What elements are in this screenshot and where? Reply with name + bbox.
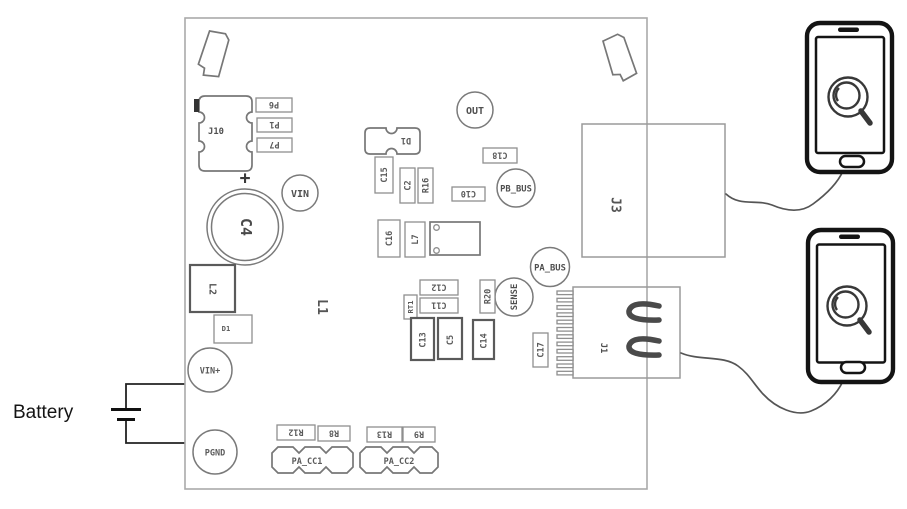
r20-label: R20 xyxy=(484,289,494,304)
j1-pins xyxy=(557,291,573,375)
d1-top-label: D1 xyxy=(401,135,411,145)
battery-wire-positive xyxy=(126,384,185,409)
testpoint-vin-plus: VIN+ xyxy=(188,348,232,392)
battery-label: Battery xyxy=(13,402,74,423)
j10-label: J10 xyxy=(208,127,224,137)
c4-label: C4 xyxy=(237,218,255,236)
testpoint-pb-bus: PB_BUS xyxy=(497,169,535,207)
j1-label: J1 xyxy=(598,343,608,354)
board-mark-top-right xyxy=(601,32,637,83)
l7-label: L7 xyxy=(411,234,421,244)
connector-j1: J1 xyxy=(557,287,680,378)
c16-label: C16 xyxy=(385,231,395,246)
connector-pa-cc2: PA_CC2 xyxy=(360,447,438,473)
battery-wire-negative xyxy=(126,420,185,443)
l2-label: L2 xyxy=(207,283,218,295)
phone-2-speaker xyxy=(839,235,860,240)
pa-bus-label: PA_BUS xyxy=(534,264,566,274)
phone-2-home-button xyxy=(841,362,865,373)
d1-label: D1 xyxy=(222,324,231,333)
usb-cable-to-phone-1 xyxy=(726,171,843,210)
c15-label: C15 xyxy=(380,167,390,182)
j1-shield-clip-2 xyxy=(629,339,659,355)
phone-1 xyxy=(807,23,892,172)
c11-label: C11 xyxy=(431,300,446,310)
r9-label: R9 xyxy=(414,429,424,439)
c5-label: C5 xyxy=(446,335,456,345)
connector-j3: J3 xyxy=(582,124,725,257)
r12-label: R12 xyxy=(288,427,303,437)
c14-label: C14 xyxy=(480,333,490,348)
l1-label: L1 xyxy=(314,299,329,315)
diagram-canvas: Battery J10 P6 P1 P7 + C4 VIN OUT xyxy=(0,0,907,509)
testpoint-sense: SENSE xyxy=(495,278,533,316)
sense-label: SENSE xyxy=(510,284,520,310)
testpoint-pgnd: PGND xyxy=(193,430,237,474)
testpoint-out: OUT xyxy=(457,92,493,128)
vin-label: VIN xyxy=(291,189,309,200)
j10-pin1-mark xyxy=(194,99,199,112)
pcb-diagram: Battery J10 P6 P1 P7 + C4 VIN OUT xyxy=(0,0,907,509)
pa-cc2-label: PA_CC2 xyxy=(384,457,415,467)
r16-label: R16 xyxy=(422,178,432,193)
j3-label: J3 xyxy=(608,197,623,213)
phone-2 xyxy=(808,230,893,382)
pgnd-label: PGND xyxy=(205,449,225,459)
j1-shield-clip-1 xyxy=(629,304,659,320)
c12-label: C12 xyxy=(431,282,446,292)
battery-symbol: Battery xyxy=(13,384,185,443)
pa-cc1-label: PA_CC1 xyxy=(292,457,323,467)
connector-j10: J10 xyxy=(194,96,252,171)
vin-plus-label: VIN+ xyxy=(200,367,220,377)
testpoint-vin: VIN xyxy=(282,175,318,211)
polarity-plus-mark: + xyxy=(240,168,251,189)
p6-label: P6 xyxy=(269,99,279,109)
p1-label: P1 xyxy=(269,119,279,129)
component-relay-footprint xyxy=(430,222,480,255)
r13-label: R13 xyxy=(377,429,392,439)
pb-bus-label: PB_BUS xyxy=(500,185,532,195)
rt1-label: RT1 xyxy=(406,301,415,314)
phone-1-home-button xyxy=(840,156,864,167)
c2-label: C2 xyxy=(404,180,414,190)
connector-pa-cc1: PA_CC1 xyxy=(272,447,353,473)
c17-label: C17 xyxy=(537,342,547,357)
testpoint-pa-bus: PA_BUS xyxy=(531,248,570,287)
r8-label: R8 xyxy=(329,428,339,438)
component-d1-top: D1 xyxy=(365,128,420,154)
component-d1: D1 xyxy=(214,315,252,343)
phone-1-speaker xyxy=(838,28,859,33)
phone-1-screen xyxy=(816,37,884,153)
c10-label: C10 xyxy=(461,188,476,198)
c18-label: C18 xyxy=(492,150,507,160)
board-mark-top-left xyxy=(196,29,231,80)
p7-label: P7 xyxy=(269,139,279,149)
component-l2: L2 xyxy=(190,265,235,312)
c13-label: C13 xyxy=(419,332,429,347)
out-label: OUT xyxy=(466,106,484,117)
component-c4: C4 xyxy=(207,189,283,265)
